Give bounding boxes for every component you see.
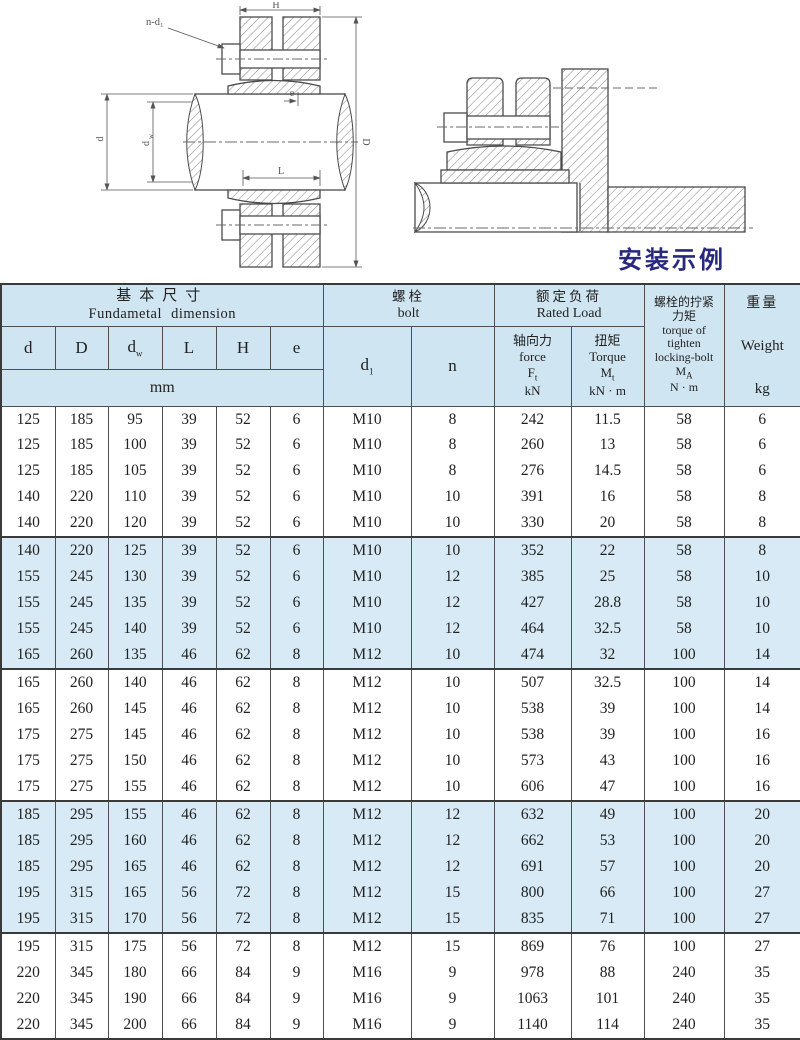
table-cell: 606 <box>494 774 571 801</box>
table-row: 1251859539526M10824211.5586 <box>1 406 800 433</box>
table-cell: 220 <box>1 986 55 1012</box>
table-row: 14022012039526M101033020588 <box>1 510 800 537</box>
table-cell: 14.5 <box>571 458 644 484</box>
table-cell: 56 <box>162 905 216 932</box>
installation-example-caption: 安装示例 <box>618 240 726 275</box>
table-cell: 39 <box>571 722 644 748</box>
table-cell: 14 <box>724 642 800 669</box>
table-cell: 52 <box>216 484 270 510</box>
table-cell: 84 <box>216 1012 270 1039</box>
table-cell: M10 <box>323 458 411 484</box>
table-cell: 160 <box>108 828 162 854</box>
table-row: 14022011039526M101039116588 <box>1 484 800 510</box>
table-cell: M10 <box>323 590 411 616</box>
table-cell: 245 <box>55 616 108 642</box>
table-cell: 8 <box>724 484 800 510</box>
table-cell: 835 <box>494 905 571 932</box>
table-cell: 100 <box>644 748 724 774</box>
table-cell: 175 <box>108 933 162 960</box>
table-cell: 58 <box>644 590 724 616</box>
table-cell: 155 <box>1 616 55 642</box>
table-cell: 125 <box>1 433 55 459</box>
table-cell: 125 <box>1 406 55 433</box>
table-cell: 185 <box>55 433 108 459</box>
table-cell: 130 <box>108 564 162 590</box>
table-row: 18529516546628M12126915710020 <box>1 854 800 880</box>
table-cell: 100 <box>644 880 724 906</box>
table-cell: 6 <box>724 458 800 484</box>
table-cell: M10 <box>323 564 411 590</box>
table-cell: 6 <box>270 590 323 616</box>
table-cell: 9 <box>411 960 494 986</box>
table-cell: 220 <box>55 537 108 564</box>
table-cell: M12 <box>323 854 411 880</box>
header-tighten-cn1: 螺栓的拧紧 <box>645 296 724 310</box>
header-tighten-en1: torque of <box>645 324 724 338</box>
table-cell: 39 <box>162 433 216 459</box>
table-cell: 95 <box>108 406 162 433</box>
header-bolt-cn: 螺栓 <box>324 288 494 306</box>
table-cell: 52 <box>216 616 270 642</box>
col-header-d1: d1 <box>323 326 411 406</box>
table-cell: 11.5 <box>571 406 644 433</box>
table-cell: 220 <box>55 510 108 537</box>
table-cell: 32.5 <box>571 669 644 696</box>
table-cell: 662 <box>494 828 571 854</box>
table-cell: 15 <box>411 933 494 960</box>
table-cell: M12 <box>323 642 411 669</box>
table-row: 16526014046628M121050732.510014 <box>1 669 800 696</box>
table-row: 22034520066849M169114011424035 <box>1 1012 800 1039</box>
table-cell: 66 <box>162 1012 216 1039</box>
table-cell: 10 <box>411 510 494 537</box>
table-cell: 190 <box>108 986 162 1012</box>
table-cell: 427 <box>494 590 571 616</box>
table-cell: 100 <box>644 854 724 880</box>
table-cell: 35 <box>724 986 800 1012</box>
table-cell: 10 <box>411 722 494 748</box>
table-cell: 180 <box>108 960 162 986</box>
table-row: 12518510039526M10826013586 <box>1 433 800 459</box>
table-cell: 46 <box>162 696 216 722</box>
table-cell: 10 <box>411 696 494 722</box>
table-cell: 100 <box>644 642 724 669</box>
table-cell: 58 <box>644 484 724 510</box>
dim-label-e: e <box>290 88 295 99</box>
table-cell: 507 <box>494 669 571 696</box>
table-cell: 39 <box>162 484 216 510</box>
header-weight: 重量 Weight kg <box>724 284 800 406</box>
table-cell: 240 <box>644 986 724 1012</box>
table-cell: 12 <box>411 828 494 854</box>
table-cell: M10 <box>323 484 411 510</box>
table-cell: 8 <box>270 828 323 854</box>
table-cell: 66 <box>162 960 216 986</box>
table-cell: M12 <box>323 801 411 828</box>
table-cell: 10 <box>411 537 494 564</box>
table-cell: 16 <box>571 484 644 510</box>
table-cell: 8 <box>270 642 323 669</box>
table-cell: 39 <box>162 510 216 537</box>
table-cell: 185 <box>1 828 55 854</box>
table-cell: 6 <box>724 406 800 433</box>
table-row: 19531517556728M12158697610027 <box>1 933 800 960</box>
table-cell: 12 <box>411 590 494 616</box>
table-cell: 58 <box>644 433 724 459</box>
table-cell: M12 <box>323 748 411 774</box>
col-header-H: H <box>216 326 270 369</box>
table-cell: 175 <box>1 722 55 748</box>
table-cell: 6 <box>270 406 323 433</box>
table-cell: 869 <box>494 933 571 960</box>
table-cell: 20 <box>571 510 644 537</box>
table-cell: M12 <box>323 722 411 748</box>
header-basic-cn: 基本尺寸 <box>2 287 323 306</box>
table-cell: 62 <box>216 828 270 854</box>
table-cell: 8 <box>270 774 323 801</box>
table-cell: 345 <box>55 1012 108 1039</box>
table-cell: 58 <box>644 406 724 433</box>
table-cell: 165 <box>1 669 55 696</box>
table-cell: 43 <box>571 748 644 774</box>
table-cell: 100 <box>644 696 724 722</box>
table-cell: 53 <box>571 828 644 854</box>
table-cell: 15 <box>411 880 494 906</box>
table-cell: 72 <box>216 880 270 906</box>
table-cell: 165 <box>1 642 55 669</box>
table-cell: 8 <box>270 801 323 828</box>
header-group-basic: 基本尺寸 Fundametal dimension <box>1 284 323 326</box>
header-tighten-unit: N · m <box>645 381 724 395</box>
table-cell: 35 <box>724 960 800 986</box>
dimension-spec-table: 基本尺寸 Fundametal dimension 螺栓 bolt 额定负荷 R… <box>0 283 800 1040</box>
table-cell: 8 <box>411 433 494 459</box>
col-header-d: d <box>1 326 55 369</box>
col-header-axial-force: 轴向力 force Ft kN <box>494 326 571 406</box>
table-cell: 145 <box>108 722 162 748</box>
table-cell: 295 <box>55 828 108 854</box>
table-cell: 46 <box>162 801 216 828</box>
col-header-torque: 扭矩 Torque Mt kN · m <box>571 326 644 406</box>
table-cell: 100 <box>644 801 724 828</box>
table-cell: 125 <box>1 458 55 484</box>
table-cell: 538 <box>494 696 571 722</box>
col-header-dw: dw <box>108 326 162 369</box>
locking-assembly-section-drawing: H n-d₁ d d w D L e <box>88 2 388 280</box>
table-row: 18529515546628M12126324910020 <box>1 801 800 828</box>
table-cell: 6 <box>270 537 323 564</box>
table-cell: 8 <box>411 458 494 484</box>
table-cell: 62 <box>216 748 270 774</box>
table-row: 17527515046628M12105734310016 <box>1 748 800 774</box>
table-cell: 978 <box>494 960 571 986</box>
table-row: 15524513039526M1012385255810 <box>1 564 800 590</box>
table-cell: 100 <box>644 828 724 854</box>
table-cell: 242 <box>494 406 571 433</box>
table-cell: 27 <box>724 933 800 960</box>
table-cell: 39 <box>162 616 216 642</box>
dim-label-D: D <box>360 138 371 145</box>
table-cell: M10 <box>323 537 411 564</box>
table-cell: 62 <box>216 696 270 722</box>
table-cell: 10 <box>724 590 800 616</box>
table-cell: 10 <box>411 669 494 696</box>
table-cell: 46 <box>162 642 216 669</box>
table-cell: 345 <box>55 960 108 986</box>
table-cell: 632 <box>494 801 571 828</box>
torque-unit: kN · m <box>572 383 644 399</box>
table-cell: 6 <box>270 484 323 510</box>
header-rated-cn: 额定负荷 <box>495 288 644 306</box>
table-cell: 39 <box>162 537 216 564</box>
table-cell: 345 <box>55 986 108 1012</box>
table-cell: M12 <box>323 905 411 932</box>
table-cell: 46 <box>162 669 216 696</box>
table-cell: 170 <box>108 905 162 932</box>
table-cell: 474 <box>494 642 571 669</box>
table-cell: 8 <box>270 669 323 696</box>
table-cell: 58 <box>644 564 724 590</box>
table-cell: 220 <box>1 960 55 986</box>
table-row: 14022012539526M101035222588 <box>1 537 800 564</box>
table-cell: 66 <box>162 986 216 1012</box>
table-cell: 52 <box>216 564 270 590</box>
force-en: force <box>495 349 571 365</box>
table-row: 16526014546628M12105383910014 <box>1 696 800 722</box>
table-cell: 62 <box>216 642 270 669</box>
table-cell: 125 <box>108 537 162 564</box>
table-cell: 39 <box>162 406 216 433</box>
table-row: 16526013546628M12104743210014 <box>1 642 800 669</box>
table-cell: 9 <box>411 986 494 1012</box>
table-cell: 185 <box>1 801 55 828</box>
table-cell: 140 <box>1 484 55 510</box>
table-cell: 110 <box>108 484 162 510</box>
table-cell: 15 <box>411 905 494 932</box>
table-cell: 20 <box>724 801 800 828</box>
table-cell: 391 <box>494 484 571 510</box>
table-cell: M10 <box>323 616 411 642</box>
table-cell: 62 <box>216 669 270 696</box>
table-cell: 8 <box>270 880 323 906</box>
dim-label-dw-sub: w <box>147 133 155 139</box>
table-cell: 56 <box>162 880 216 906</box>
table-cell: 32.5 <box>571 616 644 642</box>
table-row: 17527515546628M12106064710016 <box>1 774 800 801</box>
table-cell: 46 <box>162 854 216 880</box>
table-cell: 315 <box>55 880 108 906</box>
table-cell: 538 <box>494 722 571 748</box>
header-weight-en: Weight <box>725 338 800 355</box>
table-cell: 52 <box>216 458 270 484</box>
table-cell: 240 <box>644 960 724 986</box>
table-cell: 8 <box>411 406 494 433</box>
table-cell: 6 <box>270 458 323 484</box>
table-cell: 140 <box>1 510 55 537</box>
table-cell: 260 <box>55 642 108 669</box>
table-cell: 9 <box>270 1012 323 1039</box>
table-cell: M12 <box>323 880 411 906</box>
table-cell: 39 <box>571 696 644 722</box>
table-cell: M12 <box>323 669 411 696</box>
col-header-e: e <box>270 326 323 369</box>
table-cell: 275 <box>55 774 108 801</box>
table-cell: 105 <box>108 458 162 484</box>
table-cell: 100 <box>108 433 162 459</box>
table-cell: 260 <box>494 433 571 459</box>
table-cell: 10 <box>724 616 800 642</box>
table-cell: 56 <box>162 933 216 960</box>
table-cell: 120 <box>108 510 162 537</box>
header-tighten-cn2: 力矩 <box>645 310 724 324</box>
table-cell: 10 <box>411 774 494 801</box>
table-cell: 100 <box>644 669 724 696</box>
header-rated-en: Rated Load <box>495 305 644 323</box>
table-cell: 200 <box>108 1012 162 1039</box>
table-cell: 39 <box>162 564 216 590</box>
table-cell: 8 <box>270 748 323 774</box>
table-cell: 100 <box>644 905 724 932</box>
table-cell: 6 <box>270 616 323 642</box>
table-cell: 9 <box>270 960 323 986</box>
table-cell: 385 <box>494 564 571 590</box>
table-row: 15524513539526M101242728.85810 <box>1 590 800 616</box>
table-cell: 52 <box>216 590 270 616</box>
table-cell: 8 <box>724 510 800 537</box>
table-cell: 20 <box>724 854 800 880</box>
dim-label-dw: d <box>141 141 152 146</box>
table-cell: 245 <box>55 590 108 616</box>
table-cell: 260 <box>55 669 108 696</box>
table-cell: 135 <box>108 642 162 669</box>
table-cell: 14 <box>724 696 800 722</box>
table-cell: 88 <box>571 960 644 986</box>
table-cell: 1140 <box>494 1012 571 1039</box>
table-header: 基本尺寸 Fundametal dimension 螺栓 bolt 额定负荷 R… <box>1 284 800 406</box>
table-cell: 39 <box>162 590 216 616</box>
table-cell: 72 <box>216 905 270 932</box>
table-cell: 57 <box>571 854 644 880</box>
table-cell: 46 <box>162 774 216 801</box>
table-cell: 58 <box>644 458 724 484</box>
table-cell: 295 <box>55 801 108 828</box>
table-cell: 1063 <box>494 986 571 1012</box>
table-cell: 275 <box>55 748 108 774</box>
table-cell: 27 <box>724 880 800 906</box>
col-header-L: L <box>162 326 216 369</box>
table-cell: 175 <box>1 748 55 774</box>
table-cell: 10 <box>411 642 494 669</box>
table-cell: 9 <box>270 986 323 1012</box>
table-cell: 8 <box>270 933 323 960</box>
table-cell: 6 <box>724 433 800 459</box>
table-cell: 76 <box>571 933 644 960</box>
table-row: 19531516556728M12158006610027 <box>1 880 800 906</box>
table-cell: 13 <box>571 433 644 459</box>
table-cell: 100 <box>644 933 724 960</box>
table-cell: M12 <box>323 696 411 722</box>
table-cell: 12 <box>411 616 494 642</box>
table-cell: 8 <box>270 905 323 932</box>
table-cell: 84 <box>216 986 270 1012</box>
table-cell: 220 <box>1 1012 55 1039</box>
unit-row-mm: mm <box>1 369 323 406</box>
table-cell: M10 <box>323 510 411 537</box>
table-cell: 276 <box>494 458 571 484</box>
col-header-n: n <box>411 326 494 406</box>
table-cell: 240 <box>644 1012 724 1039</box>
table-cell: 16 <box>724 774 800 801</box>
table-cell: 12 <box>411 801 494 828</box>
table-cell: 84 <box>216 960 270 986</box>
table-cell: 58 <box>644 537 724 564</box>
table-cell: 195 <box>1 905 55 932</box>
table-cell: 49 <box>571 801 644 828</box>
table-cell: 52 <box>216 433 270 459</box>
table-cell: 800 <box>494 880 571 906</box>
torque-symbol: Mt <box>572 365 644 384</box>
table-cell: M10 <box>323 406 411 433</box>
table-row: 18529516046628M12126625310020 <box>1 828 800 854</box>
table-cell: 245 <box>55 564 108 590</box>
table-cell: 691 <box>494 854 571 880</box>
table-cell: 39 <box>162 458 216 484</box>
table-cell: 27 <box>724 905 800 932</box>
table-cell: 58 <box>644 616 724 642</box>
table-cell: 573 <box>494 748 571 774</box>
table-cell: 315 <box>55 933 108 960</box>
table-cell: 12 <box>411 564 494 590</box>
table-cell: 10 <box>411 748 494 774</box>
table-cell: 22 <box>571 537 644 564</box>
table-row: 15524514039526M101246432.55810 <box>1 616 800 642</box>
table-cell: 8 <box>724 537 800 564</box>
table-cell: 62 <box>216 774 270 801</box>
table-cell: M16 <box>323 960 411 986</box>
table-cell: 275 <box>55 722 108 748</box>
table-cell: 295 <box>55 854 108 880</box>
table-cell: 62 <box>216 854 270 880</box>
table-cell: M16 <box>323 986 411 1012</box>
table-cell: 155 <box>108 801 162 828</box>
table-cell: 185 <box>55 458 108 484</box>
header-group-rated-load: 额定负荷 Rated Load <box>494 284 644 326</box>
torque-cn: 扭矩 <box>572 333 644 349</box>
table-cell: 10 <box>724 564 800 590</box>
table-cell: 9 <box>411 1012 494 1039</box>
header-tighten-en3: locking-bolt <box>645 351 724 365</box>
table-row: 19531517056728M12158357110027 <box>1 905 800 932</box>
table-cell: 135 <box>108 590 162 616</box>
header-weight-unit: kg <box>725 381 800 398</box>
table-cell: 62 <box>216 801 270 828</box>
table-cell: 16 <box>724 748 800 774</box>
table-cell: 47 <box>571 774 644 801</box>
table-cell: M12 <box>323 933 411 960</box>
header-bolt-en: bolt <box>324 305 494 323</box>
table-cell: 46 <box>162 748 216 774</box>
table-cell: 8 <box>270 722 323 748</box>
header-weight-cn: 重量 <box>725 292 800 312</box>
table-cell: 52 <box>216 406 270 433</box>
table-cell: M12 <box>323 828 411 854</box>
table-row: 12518510539526M10827614.5586 <box>1 458 800 484</box>
table-cell: 66 <box>571 880 644 906</box>
table-cell: 114 <box>571 1012 644 1039</box>
table-cell: 52 <box>216 510 270 537</box>
table-cell: 175 <box>1 774 55 801</box>
table-cell: 72 <box>216 933 270 960</box>
